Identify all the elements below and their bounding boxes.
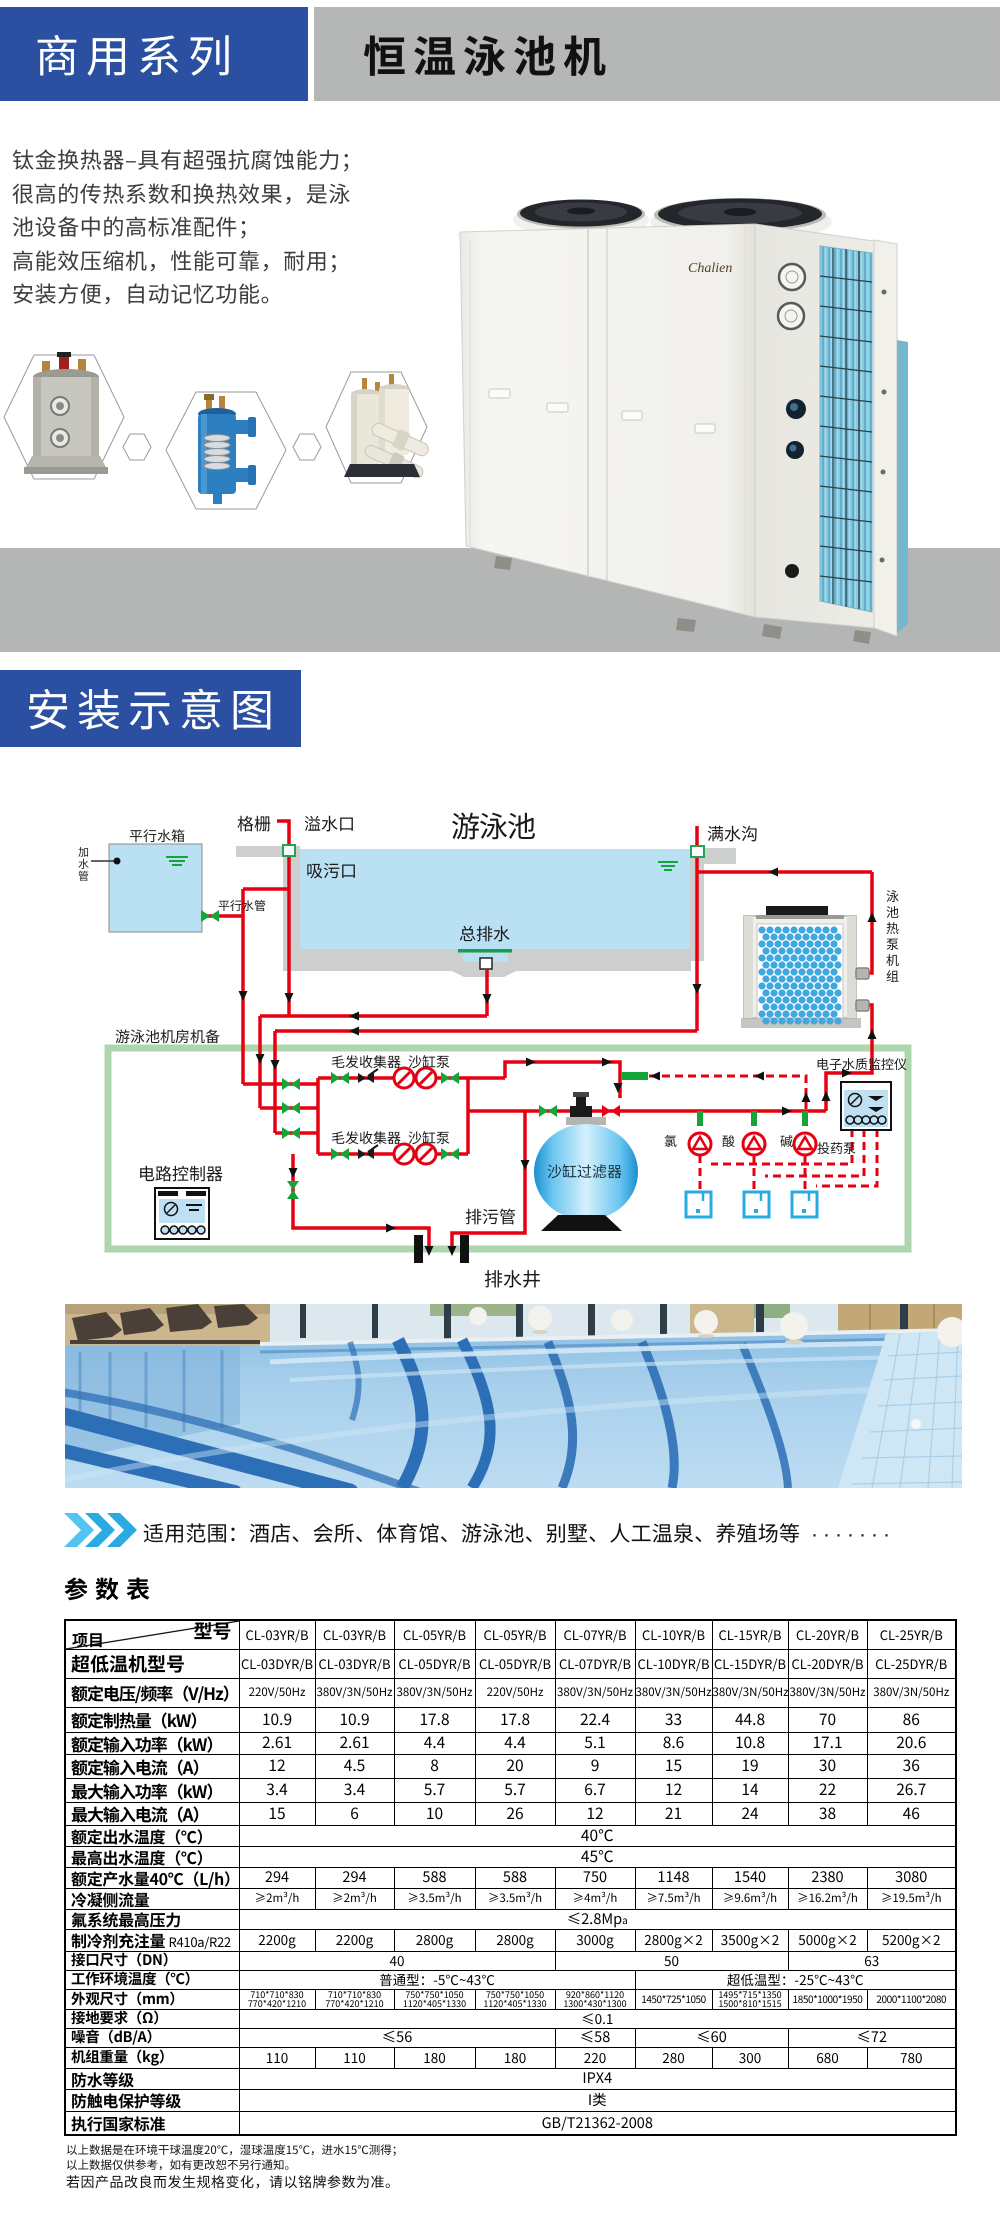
svg-text:电路控制器: 电路控制器 <box>138 1160 223 1185</box>
svg-text:满水沟: 满水沟 <box>707 820 758 845</box>
svg-text:Chalien: Chalien <box>688 261 732 276</box>
svg-text:平行水管: 平行水管 <box>218 897 266 914</box>
svg-text:酸: 酸 <box>722 1131 735 1150</box>
svg-text:氯: 氯 <box>664 1131 677 1150</box>
svg-text:游泳池: 游泳池 <box>451 804 535 846</box>
svg-text:排污管: 排污管 <box>465 1203 516 1228</box>
svg-text:总排水: 总排水 <box>459 920 510 945</box>
svg-text:电子水质监控仪: 电子水质监控仪 <box>816 1054 907 1073</box>
svg-text:平行水箱: 平行水箱 <box>129 826 185 846</box>
svg-text:毛发收集器: 毛发收集器 <box>331 1052 401 1072</box>
svg-text:沙缸过滤器: 沙缸过滤器 <box>547 1161 622 1182</box>
svg-text:排水井: 排水井 <box>484 1265 541 1292</box>
svg-text:溢水口: 溢水口 <box>304 810 355 835</box>
svg-text:组: 组 <box>886 966 899 985</box>
svg-text:吸污口: 吸污口 <box>306 857 357 882</box>
svg-text:游泳池机房机备: 游泳池机房机备 <box>115 1026 220 1047</box>
svg-text:管: 管 <box>78 868 89 884</box>
svg-text:碱: 碱 <box>780 1131 793 1150</box>
svg-text:投药泵: 投药泵 <box>817 1138 856 1157</box>
svg-text:格栅: 格栅 <box>237 810 271 835</box>
svg-text:毛发收集器: 毛发收集器 <box>331 1128 401 1148</box>
